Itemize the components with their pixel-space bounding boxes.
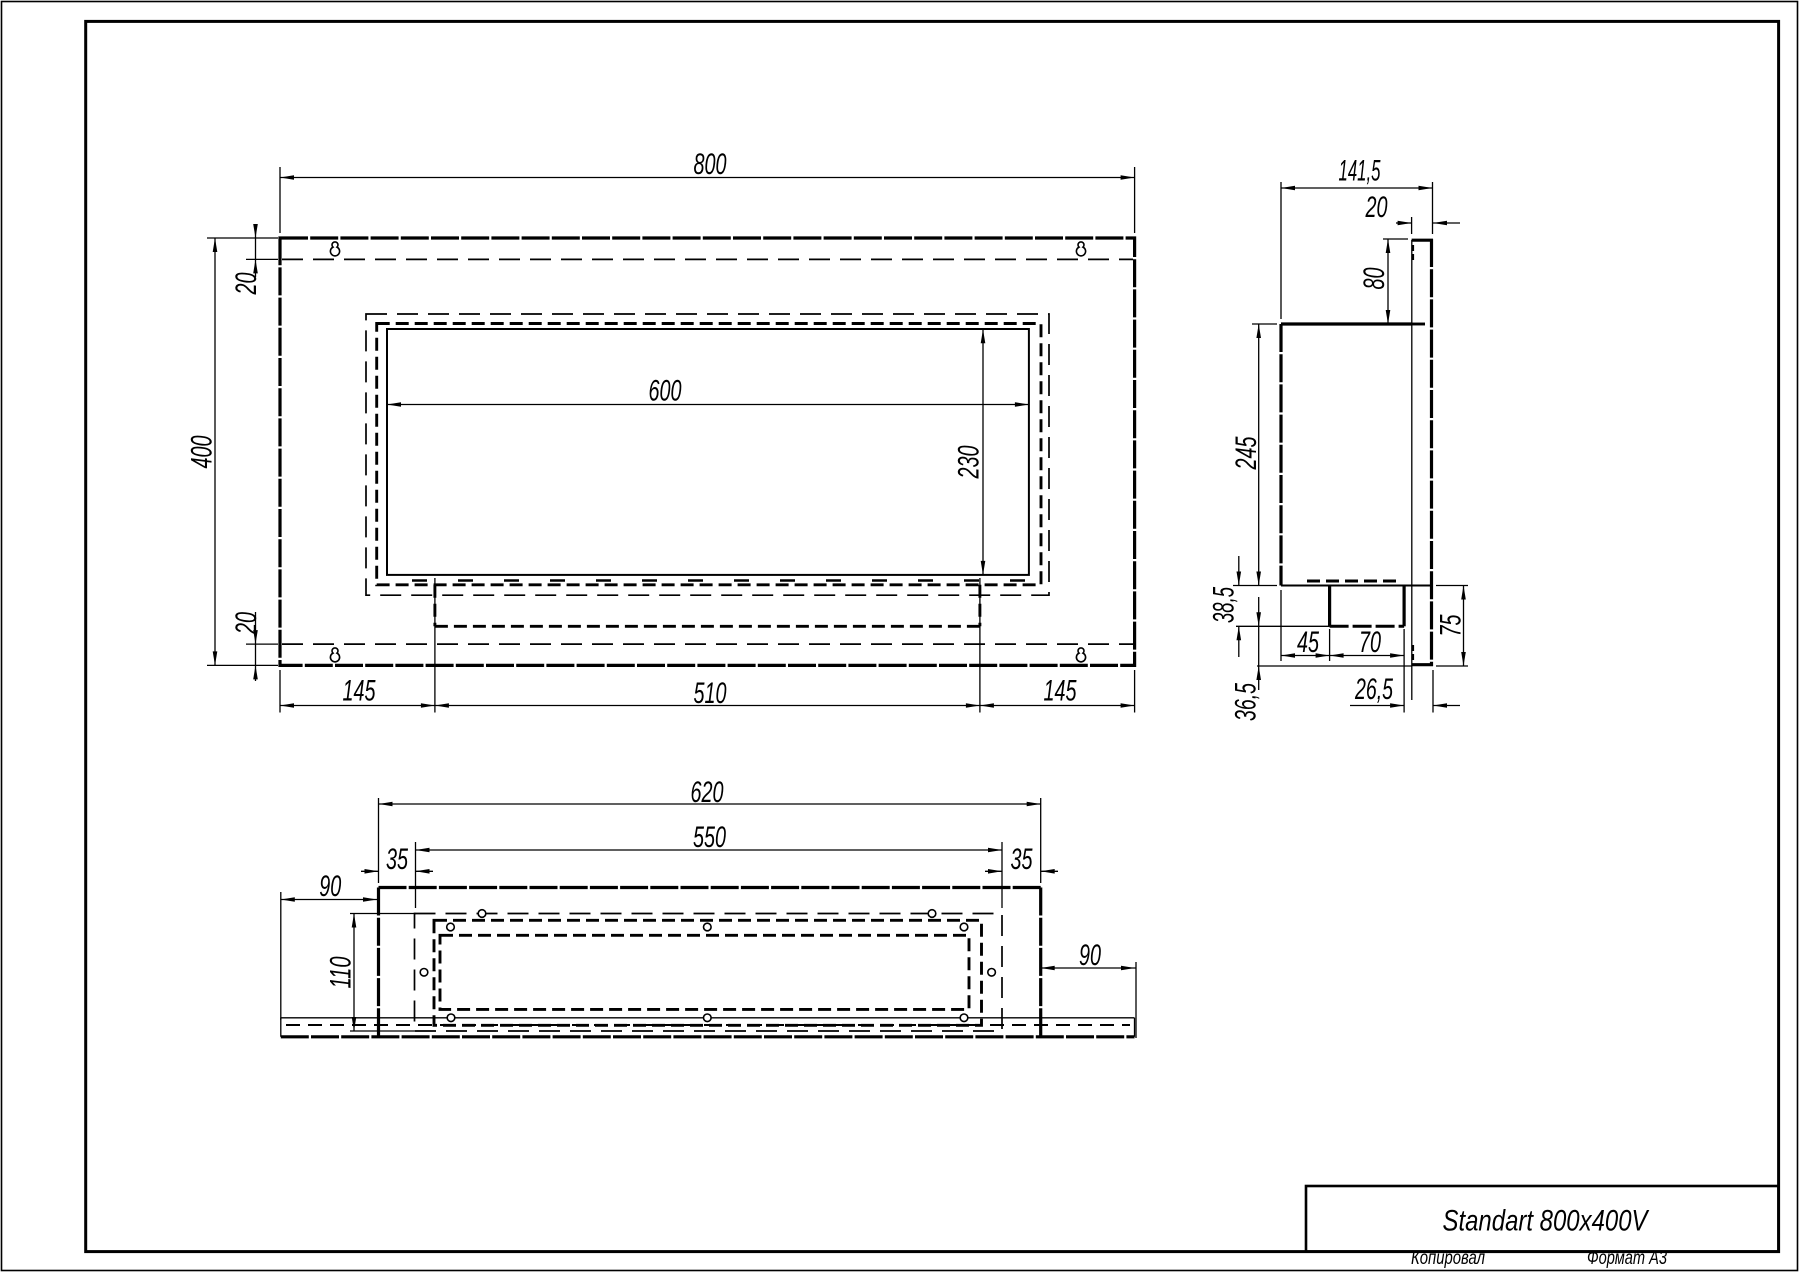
svg-text:Формат А3: Формат А3: [1587, 1248, 1667, 1269]
svg-text:35: 35: [1011, 843, 1033, 876]
svg-text:620: 620: [691, 776, 724, 809]
svg-text:45: 45: [1297, 626, 1319, 659]
svg-text:36,5: 36,5: [1230, 683, 1263, 721]
svg-text:80: 80: [1358, 267, 1391, 289]
svg-text:20: 20: [230, 272, 263, 295]
svg-text:Копировал: Копировал: [1411, 1248, 1485, 1269]
svg-text:70: 70: [1359, 626, 1381, 659]
svg-text:510: 510: [694, 677, 727, 710]
svg-text:75: 75: [1435, 614, 1468, 636]
svg-text:230: 230: [953, 445, 986, 479]
svg-text:145: 145: [343, 675, 376, 708]
svg-text:800: 800: [694, 148, 727, 181]
svg-text:550: 550: [693, 821, 726, 854]
svg-text:141,5: 141,5: [1339, 155, 1381, 188]
svg-text:600: 600: [649, 375, 682, 408]
svg-text:38,5: 38,5: [1208, 587, 1241, 623]
svg-text:Standart 800x400V: Standart 800x400V: [1443, 1205, 1650, 1238]
svg-text:400: 400: [186, 435, 219, 468]
svg-text:35: 35: [386, 843, 408, 876]
svg-text:20: 20: [1365, 191, 1388, 224]
svg-text:90: 90: [319, 870, 341, 903]
svg-text:145: 145: [1044, 675, 1077, 708]
svg-text:245: 245: [1230, 436, 1263, 470]
svg-text:20: 20: [230, 612, 263, 635]
svg-text:110: 110: [325, 956, 358, 988]
svg-text:90: 90: [1079, 939, 1101, 972]
svg-text:26,5: 26,5: [1354, 673, 1393, 706]
